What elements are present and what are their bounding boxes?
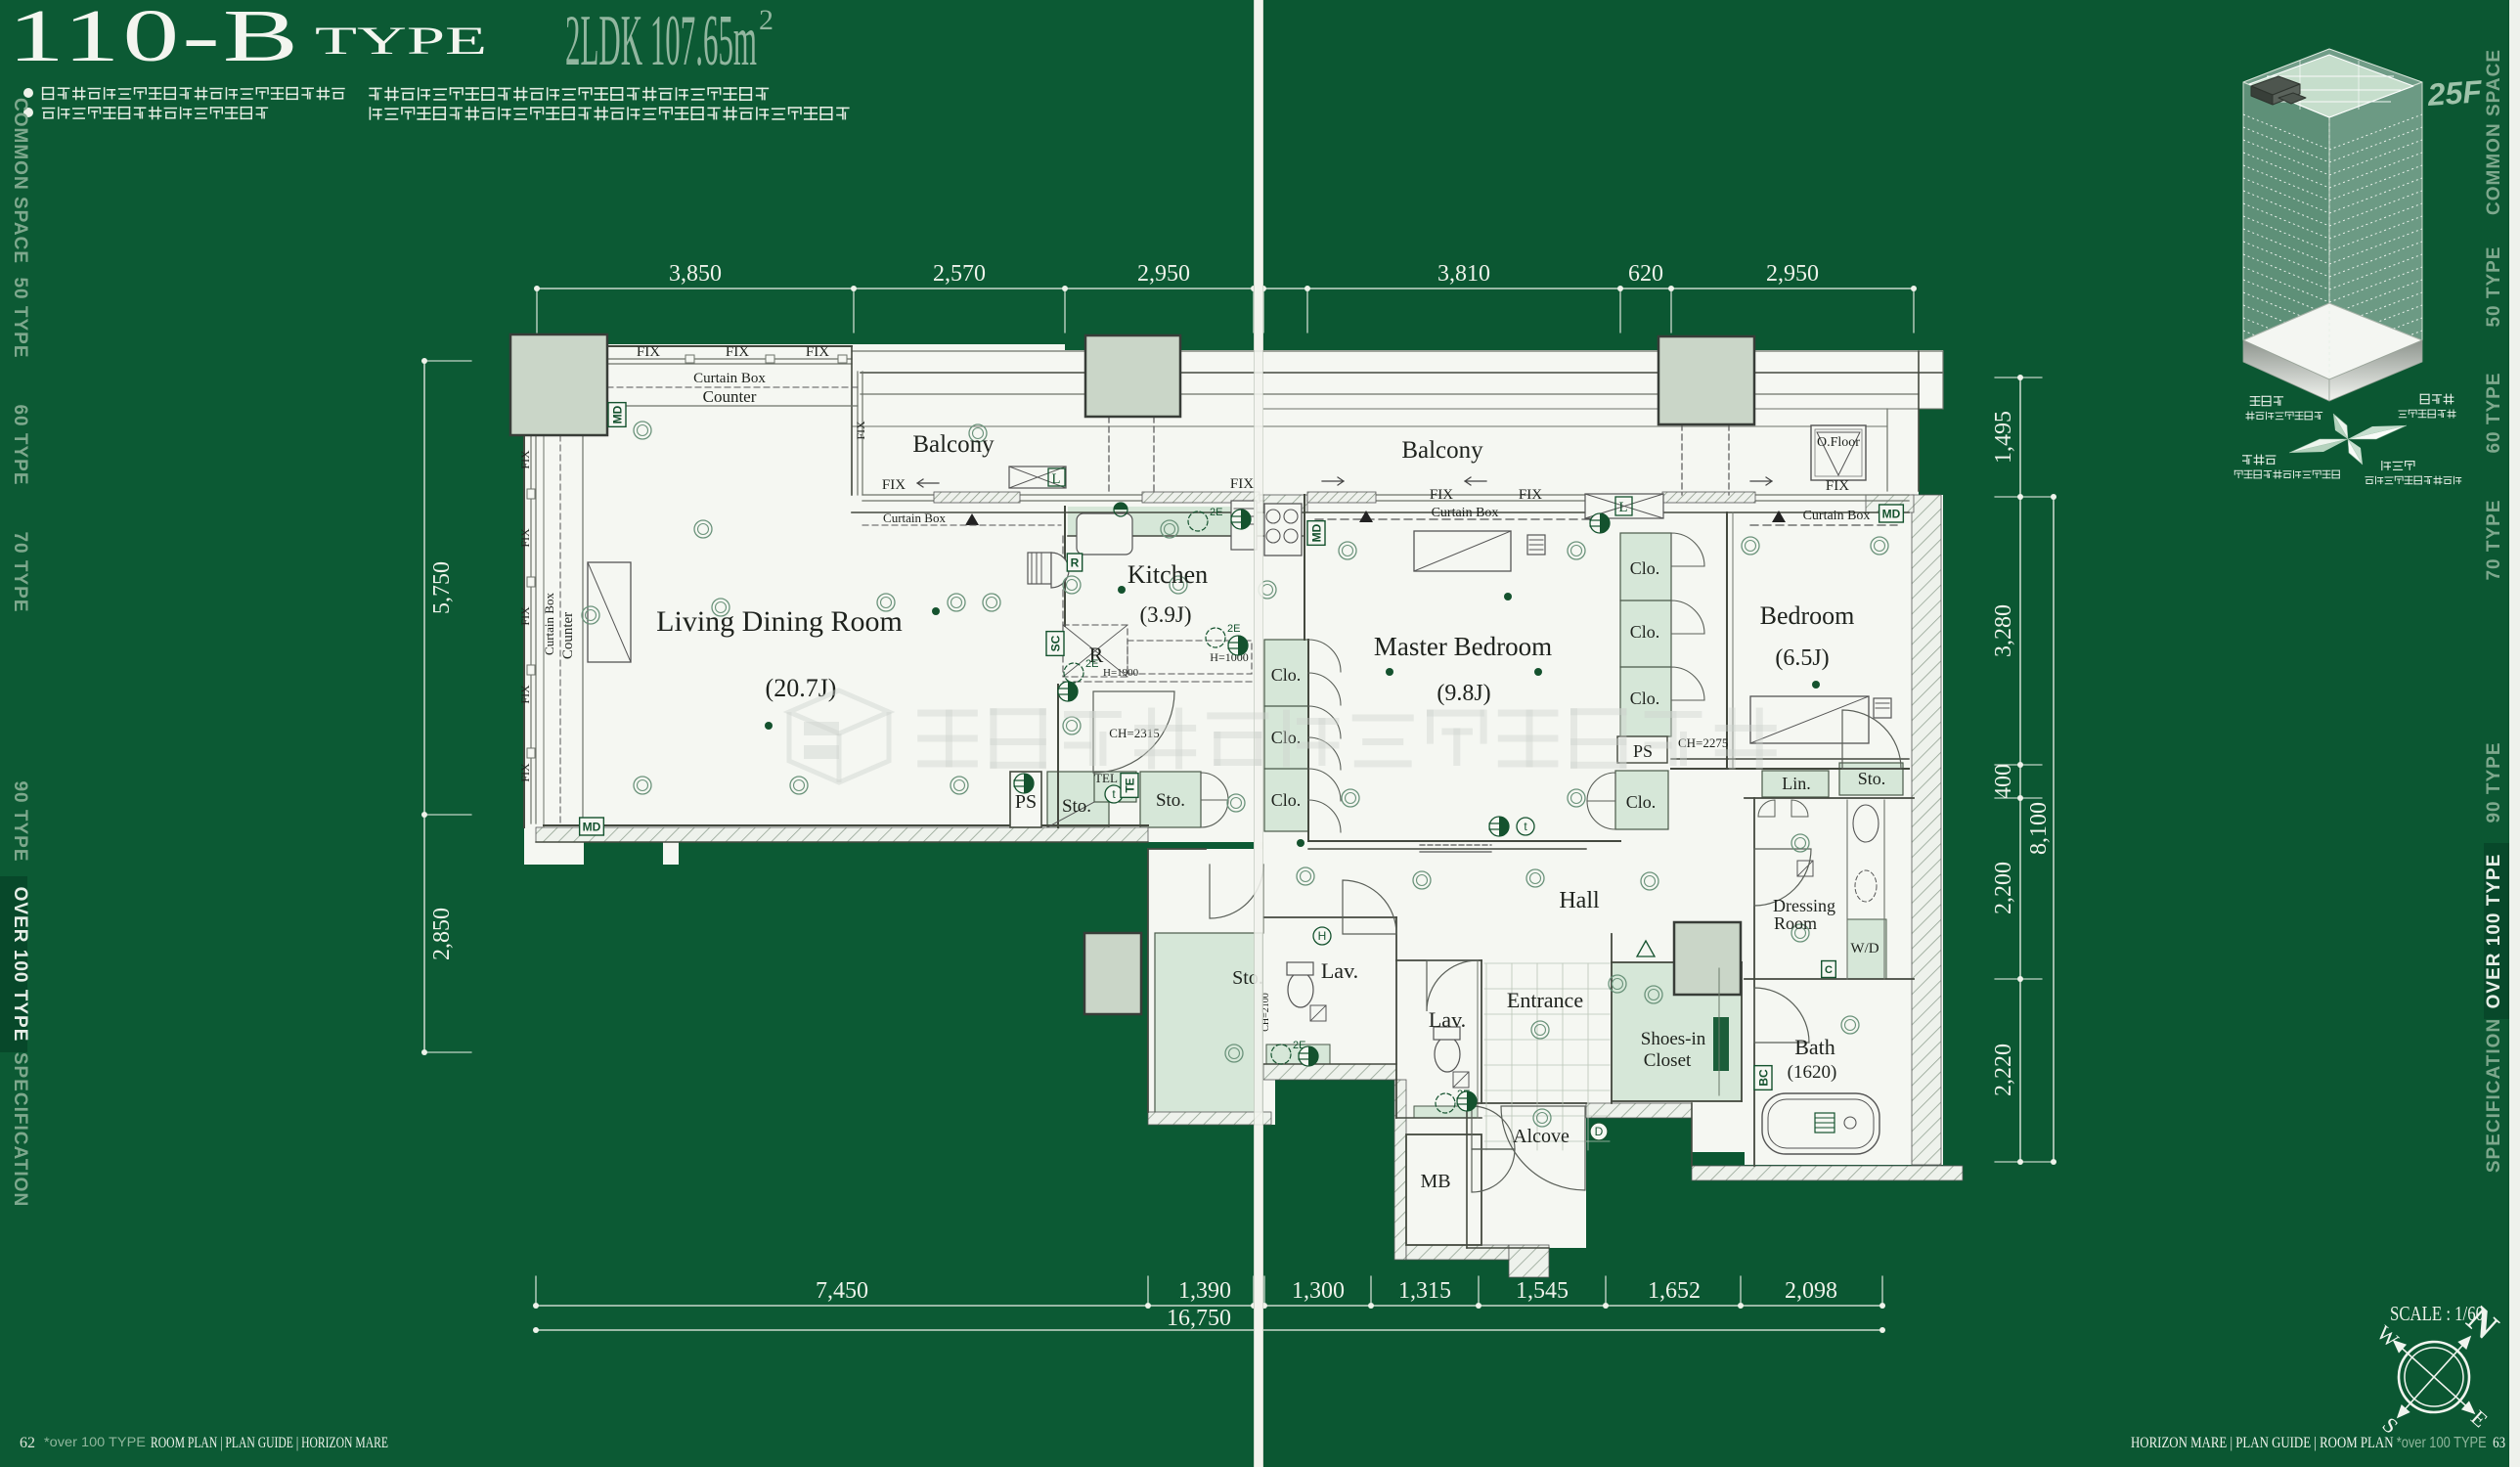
- svg-text:Lin.: Lin.: [1782, 774, 1811, 793]
- svg-text:FIX: FIX: [518, 606, 532, 626]
- svg-text:Closet: Closet: [1644, 1050, 1692, 1071]
- svg-text:Hall: Hall: [1559, 888, 1600, 913]
- svg-text:25F: 25F: [2425, 73, 2484, 112]
- svg-text:Curtain Box: Curtain Box: [693, 371, 766, 386]
- svg-text:SPECIFICATION: SPECIFICATION: [10, 1052, 30, 1207]
- svg-text:FIX: FIX: [1519, 487, 1542, 503]
- svg-text:2LDK 107.65m: 2LDK 107.65m: [565, 1, 757, 81]
- svg-text:Bath: Bath: [1794, 1035, 1835, 1059]
- svg-text:60 TYPE: 60 TYPE: [10, 404, 30, 485]
- svg-text:FIX: FIX: [518, 528, 532, 548]
- svg-text:8,100: 8,100: [2026, 802, 2052, 855]
- svg-text:90 TYPE: 90 TYPE: [10, 780, 30, 862]
- svg-text:50 TYPE: 50 TYPE: [10, 277, 30, 358]
- svg-text:90 TYPE: 90 TYPE: [2484, 741, 2504, 822]
- svg-text:Sto.: Sto.: [1858, 769, 1886, 788]
- svg-text:Bedroom: Bedroom: [1760, 601, 1855, 630]
- svg-text:FIX: FIX: [882, 477, 906, 493]
- svg-text:FIX: FIX: [1826, 478, 1849, 494]
- svg-text:MD: MD: [583, 820, 601, 833]
- svg-text:O.Floor: O.Floor: [1817, 435, 1860, 450]
- svg-text:(6.5J): (6.5J): [1775, 645, 1829, 671]
- svg-text:TEL: TEL: [1094, 771, 1118, 785]
- svg-text:2: 2: [759, 4, 774, 36]
- svg-text:TE: TE: [1123, 778, 1136, 792]
- svg-text:Counter: Counter: [703, 387, 757, 406]
- svg-text:H=1900: H=1900: [1103, 667, 1139, 679]
- svg-text:2,200: 2,200: [1991, 862, 2016, 914]
- svg-text:FIX: FIX: [637, 344, 660, 360]
- svg-text:1,545: 1,545: [1516, 1278, 1569, 1304]
- svg-text:SPECIFICATION: SPECIFICATION: [2484, 1018, 2504, 1173]
- svg-text:3,810: 3,810: [1437, 261, 1490, 287]
- svg-text:COMMON SPACE: COMMON SPACE: [10, 98, 30, 264]
- svg-text:1,390: 1,390: [1178, 1278, 1231, 1304]
- svg-text:MD: MD: [1309, 523, 1323, 542]
- svg-text:MD: MD: [1882, 507, 1901, 520]
- svg-text:60 TYPE: 60 TYPE: [2484, 372, 2504, 453]
- svg-text:W/D: W/D: [1850, 941, 1879, 956]
- svg-text:62: 62: [20, 1435, 35, 1451]
- svg-text:*over 100 TYPE: *over 100 TYPE: [44, 1434, 146, 1449]
- svg-text:MB: MB: [1420, 1171, 1450, 1192]
- svg-text:HORIZON MARE | PLAN GUIDE | RO: HORIZON MARE | PLAN GUIDE | ROOM PLAN *o…: [2131, 1435, 2505, 1451]
- svg-text:1,315: 1,315: [1398, 1278, 1451, 1304]
- svg-text:FIX: FIX: [1430, 487, 1453, 503]
- svg-text:OVER 100 TYPE: OVER 100 TYPE: [2484, 854, 2504, 1009]
- svg-text:COMMON SPACE: COMMON SPACE: [2484, 49, 2504, 215]
- svg-text:Sto.: Sto.: [1062, 796, 1091, 817]
- svg-text:PS: PS: [1015, 791, 1037, 813]
- svg-text:7,450: 7,450: [816, 1278, 868, 1304]
- svg-text:Balcony: Balcony: [912, 431, 995, 458]
- svg-text:2E: 2E: [1227, 623, 1240, 635]
- svg-text:Living Dining Room: Living Dining Room: [656, 605, 903, 638]
- svg-text:D: D: [1595, 1125, 1604, 1138]
- svg-text:Curtain Box: Curtain Box: [1432, 506, 1499, 520]
- svg-text:Lav.: Lav.: [1321, 958, 1358, 983]
- svg-text:2,098: 2,098: [1785, 1278, 1837, 1304]
- svg-text:3,850: 3,850: [669, 261, 722, 287]
- svg-text:2,220: 2,220: [1991, 1044, 2016, 1096]
- svg-text:Shoes-in: Shoes-in: [1641, 1029, 1706, 1049]
- svg-text:H: H: [1318, 929, 1327, 943]
- svg-text:Balcony: Balcony: [1401, 437, 1483, 464]
- svg-text:2,950: 2,950: [1137, 261, 1190, 287]
- svg-text:FIX: FIX: [806, 344, 829, 360]
- svg-text:C: C: [1825, 964, 1833, 976]
- svg-text:(3.9J): (3.9J): [1139, 602, 1191, 627]
- svg-text:2,570: 2,570: [933, 261, 986, 287]
- svg-text:Clo.: Clo.: [1626, 792, 1657, 812]
- svg-text:Clo.: Clo.: [1271, 665, 1302, 685]
- svg-text:FIX: FIX: [518, 450, 532, 469]
- svg-text:Sto.: Sto.: [1156, 790, 1185, 811]
- svg-text:2E: 2E: [1085, 658, 1098, 670]
- svg-text:Clo.: Clo.: [1630, 622, 1660, 642]
- svg-text:620: 620: [1628, 261, 1663, 287]
- svg-text:Clo.: Clo.: [1271, 790, 1302, 810]
- svg-text:Alcove: Alcove: [1513, 1126, 1569, 1147]
- svg-text:110-B: 110-B: [8, 0, 301, 77]
- svg-text:2,950: 2,950: [1766, 261, 1819, 287]
- svg-text:Master Bedroom: Master Bedroom: [1374, 632, 1552, 661]
- svg-text:(1620): (1620): [1788, 1062, 1837, 1083]
- svg-text:Entrance: Entrance: [1507, 988, 1583, 1012]
- svg-text:Counter: Counter: [560, 612, 576, 659]
- svg-text:400: 400: [1991, 764, 2016, 799]
- svg-text:FIX: FIX: [518, 763, 532, 782]
- svg-text:FIX: FIX: [1230, 476, 1254, 492]
- svg-text:70 TYPE: 70 TYPE: [2484, 499, 2504, 580]
- svg-text:Room: Room: [1774, 913, 1817, 933]
- svg-text:Lav.: Lav.: [1429, 1007, 1466, 1032]
- svg-text:1,495: 1,495: [1991, 411, 2016, 464]
- svg-text:50 TYPE: 50 TYPE: [2484, 245, 2504, 327]
- svg-text:(9.8J): (9.8J): [1437, 681, 1490, 706]
- svg-text:3,280: 3,280: [1991, 604, 2016, 657]
- svg-text:2E: 2E: [1210, 507, 1222, 518]
- svg-text:L: L: [1618, 500, 1627, 515]
- svg-text:Curtain Box: Curtain Box: [1803, 509, 1871, 523]
- svg-text:Clo.: Clo.: [1630, 558, 1660, 578]
- svg-text:5,750: 5,750: [429, 561, 455, 614]
- svg-text:Clo.: Clo.: [1630, 689, 1660, 708]
- svg-text:FIX: FIX: [726, 344, 749, 360]
- svg-text:70 TYPE: 70 TYPE: [10, 531, 30, 612]
- svg-text:BC: BC: [1756, 1069, 1770, 1087]
- svg-text:Curtain Box: Curtain Box: [883, 511, 946, 525]
- svg-text:FIX: FIX: [854, 421, 867, 440]
- svg-text:2,850: 2,850: [429, 908, 455, 960]
- svg-text:R: R: [1071, 556, 1080, 569]
- svg-text:MD: MD: [610, 405, 624, 423]
- svg-text:1,300: 1,300: [1292, 1278, 1345, 1304]
- svg-text:OVER 100 TYPE: OVER 100 TYPE: [10, 887, 30, 1043]
- svg-text:1,652: 1,652: [1648, 1278, 1701, 1304]
- svg-text:TYPE: TYPE: [315, 19, 487, 63]
- svg-text:Kitchen: Kitchen: [1127, 560, 1208, 589]
- svg-text:16,750: 16,750: [1167, 1306, 1231, 1331]
- svg-text:Dressing: Dressing: [1773, 896, 1835, 915]
- svg-text:SC: SC: [1048, 635, 1062, 651]
- svg-text:ROOM PLAN | PLAN GUIDE | HORIZ: ROOM PLAN | PLAN GUIDE | HORIZON MARE: [151, 1435, 388, 1451]
- svg-text:Curtain Box: Curtain Box: [542, 593, 556, 655]
- svg-text:FIX: FIX: [518, 685, 532, 704]
- svg-text:L: L: [1051, 471, 1060, 487]
